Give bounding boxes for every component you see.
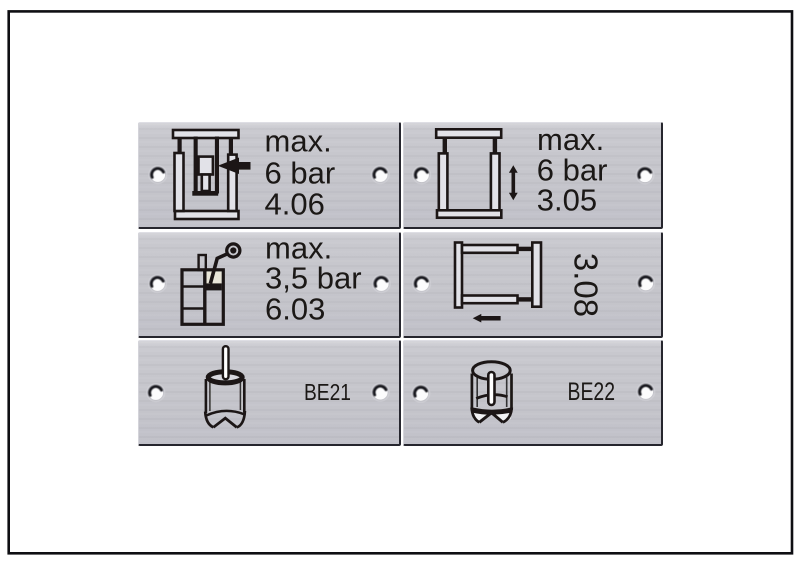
svg-text:6 bar: 6 bar <box>265 155 336 190</box>
svg-text:3.08: 3.08 <box>568 253 605 317</box>
svg-text:BE21: BE21 <box>304 379 351 405</box>
svg-text:3.05: 3.05 <box>537 183 597 218</box>
svg-text:6.03: 6.03 <box>265 291 325 326</box>
svg-text:max.: max. <box>265 124 332 159</box>
svg-text:BE22: BE22 <box>568 378 616 406</box>
svg-text:3,5 bar: 3,5 bar <box>265 261 362 296</box>
svg-text:4.06: 4.06 <box>265 186 325 221</box>
